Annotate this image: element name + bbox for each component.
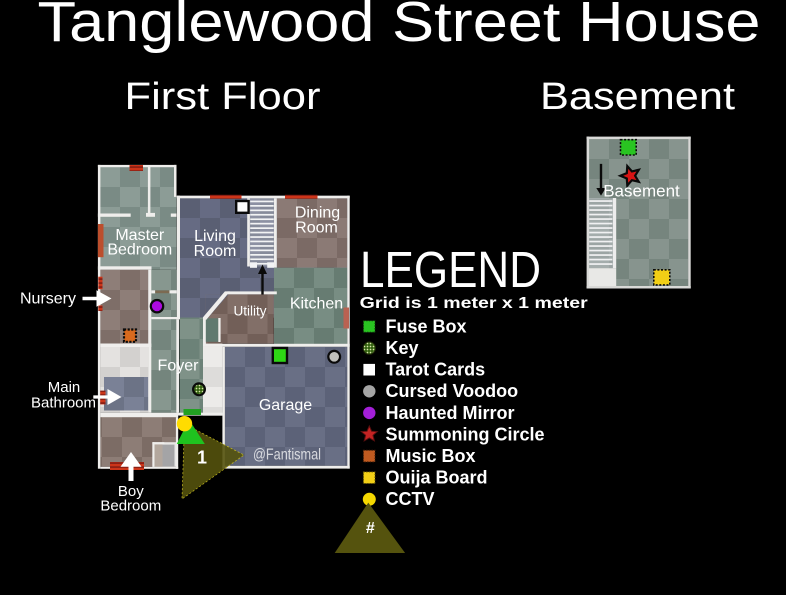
svg-text:Cursed Voodoo: Cursed Voodoo bbox=[386, 381, 519, 401]
svg-text:Tanglewood Street House: Tanglewood Street House bbox=[38, 0, 761, 54]
svg-text:Music Box: Music Box bbox=[386, 446, 476, 466]
svg-text:Foyer: Foyer bbox=[158, 358, 200, 375]
svg-text:Bedroom: Bedroom bbox=[100, 498, 161, 515]
svg-text:Basement: Basement bbox=[603, 182, 680, 201]
svg-text:1: 1 bbox=[197, 448, 207, 468]
svg-text:Nursery: Nursery bbox=[20, 291, 76, 308]
svg-text:Bathroom: Bathroom bbox=[31, 395, 96, 412]
svg-text:Summoning Circle: Summoning Circle bbox=[386, 424, 545, 444]
svg-text:#: # bbox=[366, 520, 375, 537]
svg-text:Room: Room bbox=[295, 220, 338, 237]
svg-text:Bedroom: Bedroom bbox=[107, 242, 172, 259]
svg-text:Fuse Box: Fuse Box bbox=[386, 316, 467, 336]
svg-text:@Fantismal: @Fantismal bbox=[253, 447, 321, 464]
svg-text:Utility: Utility bbox=[234, 304, 267, 319]
svg-text:CCTV: CCTV bbox=[386, 489, 435, 509]
svg-text:Haunted Mirror: Haunted Mirror bbox=[386, 403, 515, 423]
svg-text:Room: Room bbox=[194, 243, 237, 260]
svg-text:First Floor: First Floor bbox=[125, 76, 321, 118]
svg-text:Ouija Board: Ouija Board bbox=[386, 468, 488, 488]
svg-text:Kitchen: Kitchen bbox=[290, 296, 343, 313]
svg-text:Key: Key bbox=[386, 338, 419, 358]
svg-text:Garage: Garage bbox=[259, 397, 312, 414]
svg-text:LEGEND: LEGEND bbox=[360, 241, 541, 298]
svg-text:Tarot Cards: Tarot Cards bbox=[386, 360, 486, 380]
svg-text:Main: Main bbox=[48, 379, 81, 396]
svg-text:Grid is 1 meter x 1 meter: Grid is 1 meter x 1 meter bbox=[360, 295, 588, 312]
svg-text:Basement: Basement bbox=[540, 76, 736, 118]
